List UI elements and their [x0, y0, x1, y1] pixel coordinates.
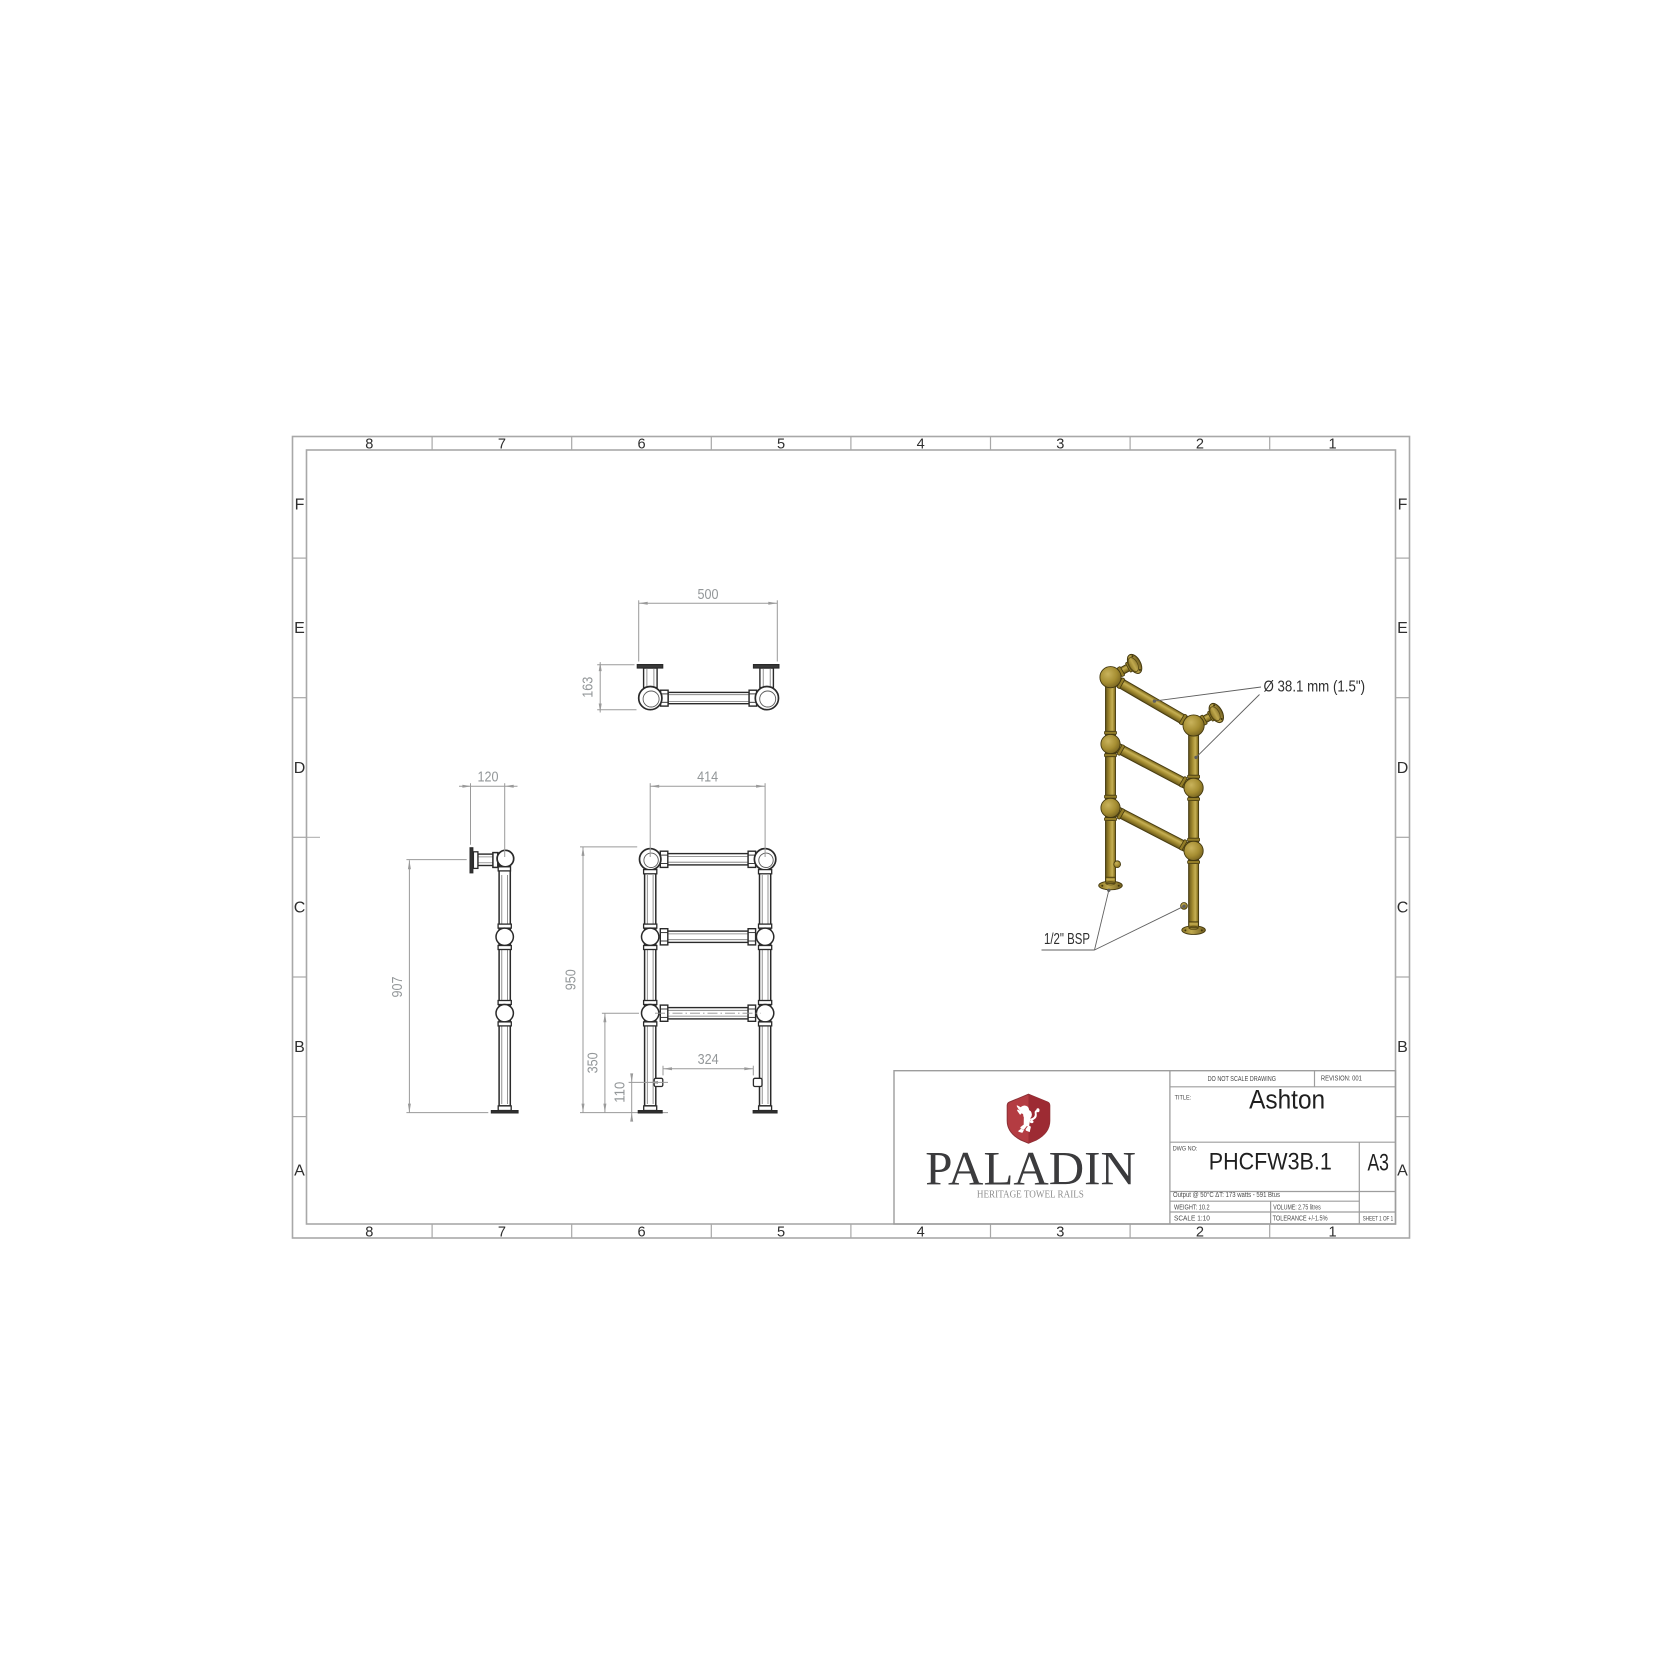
svg-text:2: 2 [1196, 437, 1204, 453]
svg-text:TITLE:: TITLE: [1175, 1094, 1192, 1101]
svg-text:5: 5 [777, 437, 785, 453]
svg-text:TOLERANCE +/-1.5%: TOLERANCE +/-1.5% [1273, 1216, 1328, 1223]
svg-text:F: F [1398, 496, 1408, 513]
svg-text:VOLUME: 2.75 litres: VOLUME: 2.75 litres [1273, 1205, 1321, 1212]
svg-text:4: 4 [917, 437, 925, 453]
svg-text:Output @ 50°C ΔT: 173 watts -: Output @ 50°C ΔT: 173 watts - 591 Btus [1173, 1191, 1280, 1199]
svg-text:6: 6 [637, 1225, 645, 1241]
svg-text:2: 2 [1196, 1225, 1204, 1241]
svg-text:WEIGHT: 10.2: WEIGHT: 10.2 [1174, 1205, 1210, 1212]
svg-text:4: 4 [917, 1225, 925, 1241]
svg-text:163: 163 [581, 677, 597, 698]
svg-text:SHEET 1 OF 1: SHEET 1 OF 1 [1363, 1215, 1394, 1222]
svg-text:1: 1 [1329, 437, 1337, 453]
svg-text:A: A [294, 1163, 305, 1180]
svg-text:907: 907 [390, 976, 406, 997]
svg-text:C: C [1397, 899, 1409, 916]
svg-text:6: 6 [637, 437, 645, 453]
svg-text:1: 1 [1329, 1225, 1337, 1241]
svg-text:B: B [1397, 1039, 1408, 1056]
svg-text:HERITAGE TOWEL RAILS: HERITAGE TOWEL RAILS [977, 1190, 1084, 1201]
svg-text:1/2" BSP: 1/2" BSP [1044, 931, 1090, 948]
svg-text:PHCFW3B.1: PHCFW3B.1 [1209, 1149, 1332, 1176]
svg-text:PALADIN: PALADIN [925, 1143, 1136, 1196]
svg-text:3: 3 [1056, 1225, 1064, 1241]
svg-text:414: 414 [697, 770, 718, 786]
svg-text:350: 350 [586, 1052, 602, 1073]
svg-text:120: 120 [478, 770, 499, 786]
svg-text:950: 950 [564, 969, 580, 990]
svg-text:F: F [295, 496, 305, 513]
svg-text:A3: A3 [1367, 1150, 1389, 1177]
svg-text:8: 8 [365, 1225, 373, 1241]
svg-text:110: 110 [612, 1082, 628, 1103]
svg-text:D: D [294, 760, 306, 777]
svg-text:7: 7 [498, 437, 506, 453]
svg-text:DO NOT SCALE DRAWING: DO NOT SCALE DRAWING [1208, 1074, 1277, 1083]
svg-text:B: B [294, 1039, 305, 1056]
svg-text:C: C [294, 899, 306, 916]
svg-text:Ashton: Ashton [1249, 1085, 1325, 1115]
svg-text:DWG NO:: DWG NO: [1173, 1146, 1198, 1153]
svg-text:5: 5 [777, 1225, 785, 1241]
svg-text:500: 500 [698, 587, 719, 603]
svg-text:REVISION: 001: REVISION: 001 [1321, 1076, 1362, 1083]
svg-text:3: 3 [1056, 437, 1064, 453]
svg-text:Ø 38.1 mm (1.5"): Ø 38.1 mm (1.5") [1264, 679, 1366, 696]
svg-text:D: D [1397, 760, 1409, 777]
svg-text:SCALE 1:10: SCALE 1:10 [1174, 1216, 1210, 1223]
svg-text:E: E [1397, 620, 1408, 637]
svg-text:E: E [294, 620, 305, 637]
svg-text:8: 8 [365, 437, 373, 453]
svg-text:324: 324 [698, 1052, 719, 1068]
svg-text:A: A [1397, 1163, 1408, 1180]
svg-text:7: 7 [498, 1225, 506, 1241]
